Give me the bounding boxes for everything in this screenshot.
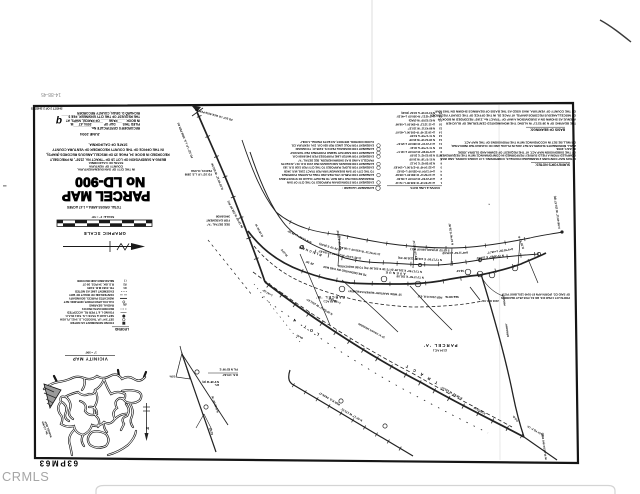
svg-text:CRMLS: CRMLS bbox=[2, 469, 49, 484]
svg-text:13: 13 bbox=[439, 134, 442, 138]
svg-text:14-88-45: 14-88-45 bbox=[41, 91, 61, 97]
svg-text:P/L N 82°09' E: P/L N 82°09' E bbox=[219, 368, 238, 372]
svg-text:14: 14 bbox=[439, 130, 442, 134]
svg-text:N 62°52'00" W (RAD): N 62°52'00" W (RAD) bbox=[409, 119, 435, 123]
svg-text:12: 12 bbox=[439, 138, 442, 142]
svg-text:EASEMENT FOR DRAINAGE PER R.S.: EASEMENT FOR DRAINAGE PER R.S. 34/26-27,… bbox=[296, 147, 374, 151]
svg-text:SCALE: 1" = 50': SCALE: 1" = 50' bbox=[91, 215, 114, 219]
svg-text:RICHARD D. DEAN, COUNTY RECORD: RICHARD D. DEAN, COUNTY RECORDER bbox=[76, 111, 140, 115]
svg-text:Δ=4°21'10" R=330.00' L=25.07: Δ=4°21'10" R=330.00' L=25.07' bbox=[396, 142, 435, 146]
svg-text:PARCEL 'B': PARCEL 'B' bbox=[315, 295, 345, 299]
svg-text:EASEMENT FOR POLE LINES PER 82: EASEMENT FOR POLE LINES PER 826 O.R. 254… bbox=[291, 144, 374, 148]
svg-text:OF SAID CO. (POR'N APN 87-0140: OF SAID CO. (POR'N APN 87-0140-120), BK8… bbox=[501, 293, 570, 297]
svg-text:TOTAL GROSS AREA = 1.47 ACRES: TOTAL GROSS AREA = 1.47 ACRES bbox=[67, 205, 121, 209]
svg-text:OF THE COUNTY OF VENTURA, WAS: OF THE COUNTY OF VENTURA, WAS USED AS TH… bbox=[435, 110, 576, 114]
svg-text:N 9°38' W (R): N 9°38' W (R) bbox=[202, 380, 219, 384]
svg-text:16: 16 bbox=[439, 123, 442, 127]
svg-text:FLOOD CONTROL DISTRICT, AFFECT: FLOOD CONTROL DISTRICT, AFFECTS PARCEL A… bbox=[300, 140, 374, 144]
svg-text:N 26°38'42" E 34.12': N 26°38'42" E 34.12' bbox=[409, 162, 435, 166]
svg-text:SEE NOTE: SEE NOTE bbox=[445, 295, 459, 299]
svg-text:EASEMENT FOR WATER LINE PURPOS: EASEMENT FOR WATER LINE PURPOSES PER 346… bbox=[292, 155, 374, 159]
svg-text:CURVE & LINE DATA: CURVE & LINE DATA bbox=[409, 186, 440, 190]
svg-text:58.16': 58.16' bbox=[456, 269, 464, 273]
svg-text:PARCEL 'A': PARCEL 'A' bbox=[422, 343, 457, 348]
svg-text:N 88°43'11" W 110.37': N 88°43'11" W 110.37' bbox=[407, 126, 435, 130]
svg-text:JUNE 2004: JUNE 2004 bbox=[79, 132, 100, 136]
svg-text:63PM63: 63PM63 bbox=[38, 459, 78, 468]
svg-text:PARCELS A AND B AS SHOWN HEREO: PARCELS A AND B AS SHOWN HEREON, SEE DET… bbox=[297, 158, 374, 162]
svg-text:SHEET 2 OF 2 SHEETS: SHEET 2 OF 2 SHEETS bbox=[31, 107, 63, 111]
svg-text:R.S. 170.32': R.S. 170.32' bbox=[222, 373, 238, 377]
svg-text:N 38°52'42" E 20.00': N 38°52'42" E 20.00' bbox=[409, 154, 435, 158]
svg-text:N 18°42'10" W 26.00': N 18°42'10" W 26.00' bbox=[409, 138, 435, 142]
svg-text:EASEMENT LEGEND :: EASEMENT LEGEND : bbox=[342, 186, 374, 190]
svg-text:IN THE OFFICE OF THE COUNTY RE: IN THE OFFICE OF THE COUNTY RECORDER OF … bbox=[52, 148, 164, 152]
svg-text:STATE OF CALIFORNIA: STATE OF CALIFORNIA bbox=[88, 161, 124, 165]
svg-text:N 51°07'18" W 26.00': N 51°07'18" W 26.00' bbox=[409, 158, 435, 162]
svg-text:N 54°10'40" E 18.02' (RAD): N 54°10'40" E 18.02' (RAD) bbox=[401, 111, 435, 115]
svg-text:Δ=16°21'40" R=300.00' L=85.6: Δ=16°21'40" R=300.00' L=85.67' bbox=[395, 130, 435, 134]
svg-text:Δ=6°11'04" L=35.62': Δ=6°11'04" L=35.62' bbox=[442, 251, 469, 255]
svg-text:LEGEND: LEGEND bbox=[114, 327, 129, 331]
svg-text:10%: 10% bbox=[169, 375, 175, 379]
svg-text:15: 15 bbox=[439, 126, 442, 130]
svg-text:TO THE CITY OF SAN BUENAVENTUR: TO THE CITY OF SAN BUENAVENTURA PER TRAC… bbox=[283, 169, 374, 173]
svg-text:Δ=7°42'21" R=300.00' L=40.35: Δ=7°42'21" R=300.00' L=40.35' bbox=[396, 115, 435, 119]
svg-text:Δ=9°55'28" R=270.00' L=46.77: Δ=9°55'28" R=270.00' L=46.77' bbox=[396, 150, 435, 154]
svg-text:(2.54 AC.): (2.54 AC.) bbox=[433, 348, 447, 352]
svg-text:BUENAVENTURA PER THIS MAP, TO: BUENAVENTURA PER THIS MAP, TO BE KEPT CL… bbox=[279, 177, 374, 181]
svg-text:EASEMENT FOR STORM DRAIN PURPO: EASEMENT FOR STORM DRAIN PURPOSES TO THE… bbox=[287, 181, 374, 185]
svg-text:Δ=22°14'40" R=270.00' L=104.: Δ=22°14'40" R=270.00' L=104.83' bbox=[393, 165, 435, 169]
svg-text:GRAPHIC SCALE: GRAPHIC SCALE bbox=[83, 231, 125, 236]
svg-text:34616/636: 34616/636 bbox=[215, 215, 230, 219]
svg-text:MEASURED AND RECORD: MEASURED AND RECORD bbox=[77, 279, 114, 283]
svg-text:Δ=14°02'11" R=330.00' L=80.8: Δ=14°02'11" R=330.00' L=80.84' bbox=[395, 173, 435, 177]
svg-text:( ): ( ) bbox=[124, 279, 127, 282]
svg-text:BASIS OF BEARINGS:: BASIS OF BEARINGS: bbox=[530, 127, 565, 131]
svg-text:VICINITY MAP: VICINITY MAP bbox=[72, 357, 107, 362]
svg-text:N 71°17'50" E 64.00': N 71°17'50" E 64.00' bbox=[409, 134, 435, 138]
svg-text:RECORDED IN BOOK 34, PAGE 35 O: RECORDED IN BOOK 34, PAGE 35 OF MISCELLA… bbox=[46, 153, 169, 157]
svg-text:Δ=8°21'33" R=270.00' L=39.39: Δ=8°21'33" R=270.00' L=39.39' bbox=[396, 177, 435, 181]
svg-text:EASEMENT FOR PUBLIC UTILITIES: EASEMENT FOR PUBLIC UTILITIES AND TREE P… bbox=[282, 173, 374, 177]
svg-text:EASEMENT FOR SLOPE PURPOSES TO: EASEMENT FOR SLOPE PURPOSES TO THE CITY … bbox=[283, 166, 374, 170]
svg-text:STATE OF CALIFORNIA.: STATE OF CALIFORNIA. bbox=[88, 143, 127, 147]
svg-text:1" = 500': 1" = 500' bbox=[85, 351, 97, 355]
svg-text:(0.93 AC.): (0.93 AC.) bbox=[324, 300, 337, 304]
svg-text:PER R1, FLUSH: PER R1, FLUSH bbox=[191, 169, 212, 173]
svg-text:No LD-900: No LD-900 bbox=[75, 175, 145, 191]
svg-text:Δ=6°11'04" R=330.00' L=35.62: Δ=6°11'04" R=330.00' L=35.62' bbox=[396, 169, 435, 173]
svg-text:Δ=12°34'10" R=330.00' L=72.4: Δ=12°34'10" R=330.00' L=72.41' bbox=[395, 181, 435, 185]
svg-text:q: q bbox=[56, 115, 62, 126]
svg-text:N 71°17'50" E 46.21': N 71°17'50" E 46.21' bbox=[409, 146, 435, 150]
svg-text:BEING A SUBDIVISION OF LOT 16: BEING A SUBDIVISION OF LOT 16 OF "TRACT … bbox=[49, 158, 166, 162]
svg-text:EASEMENT FOR INGRESS AND EGRES: EASEMENT FOR INGRESS AND EGRESS PER 2104… bbox=[281, 162, 374, 166]
svg-text:Δ=11°12'12" R=300.00' L=58.6: Δ=11°12'12" R=300.00' L=58.66' bbox=[395, 123, 435, 127]
svg-text:EASEMENT FOR SANITARY SEWER PU: EASEMENT FOR SANITARY SEWER PURPOSES PER… bbox=[290, 151, 374, 155]
svg-text:10: 10 bbox=[439, 146, 442, 150]
svg-text:2104 O.R. 617: 2104 O.R. 617 bbox=[481, 299, 499, 303]
svg-text:N: N bbox=[146, 426, 149, 431]
svg-text:OR WILL BE SET IN ACCORDANCE W: OR WILL BE SET IN ACCORDANCE WITH THE PR… bbox=[464, 141, 576, 145]
svg-text:SURVEYOR'S NOTES:: SURVEYOR'S NOTES: bbox=[535, 163, 570, 167]
